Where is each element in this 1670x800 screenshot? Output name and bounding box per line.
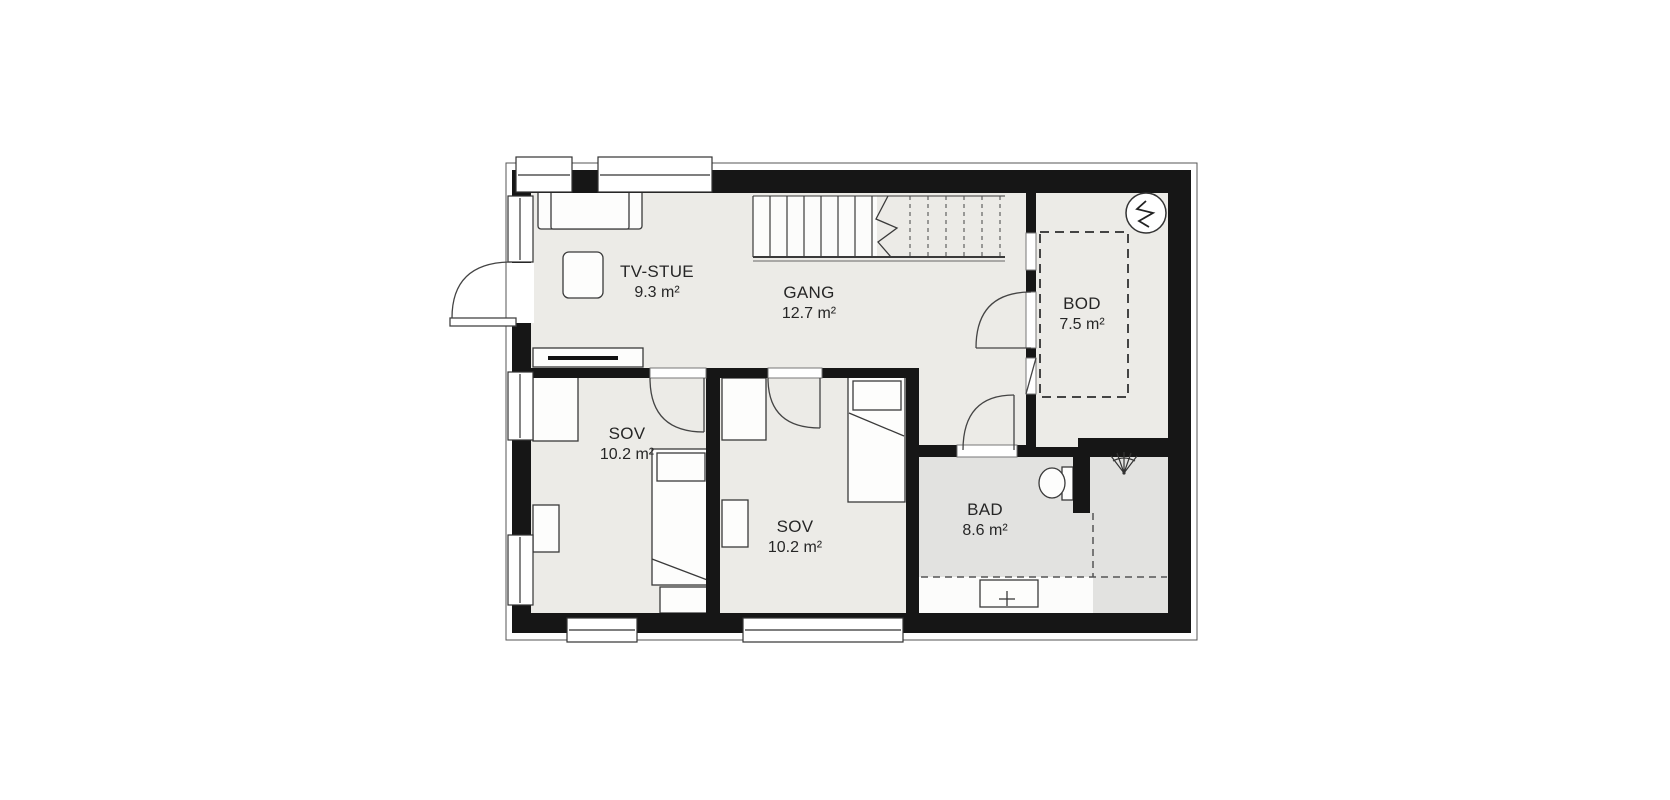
wardrobe-sov-left (533, 377, 578, 441)
wall-sov-bad (906, 368, 919, 613)
window-top-b (598, 157, 712, 192)
nightstand-sov-mid (722, 500, 748, 547)
wall-bod-left-4 (1026, 394, 1036, 457)
window-left-a (508, 196, 533, 262)
nightstand-sov-left (533, 505, 559, 552)
wall-gang-bad-a (919, 445, 957, 457)
toilet (1039, 467, 1073, 500)
opening-bod-door (1026, 292, 1036, 348)
wall-bedrooms-c (822, 368, 918, 378)
bed-sov-mid (848, 377, 905, 502)
opening-sov-mid (768, 368, 822, 378)
wall-bod-left-3 (1026, 348, 1036, 358)
media-bench (533, 348, 643, 367)
wardrobe-sov-mid (722, 378, 766, 440)
bed-sov-left (652, 449, 710, 613)
window-bottom-b (743, 618, 903, 642)
wall-bedrooms-a (531, 368, 650, 378)
wall-bod-left-2 (1026, 270, 1036, 292)
wall-bod-left-1 (1026, 193, 1036, 233)
window-bottom-a (567, 618, 637, 642)
wall-right (1168, 170, 1191, 633)
vanity-sink (980, 580, 1038, 607)
window-top-a (516, 157, 572, 192)
opening-entrance (509, 263, 534, 323)
window-left-c (508, 535, 533, 605)
wall-bod-bottom-thin (1036, 447, 1080, 457)
opening-bod-top (1026, 233, 1036, 270)
window-left-b (508, 372, 533, 440)
water-heater-icon (1126, 193, 1166, 233)
opening-sov-left (650, 368, 706, 378)
opening-bad (957, 445, 1017, 457)
floorplan-page: TV-STUE 9.3 m² GANG 12.7 m² BOD 7.5 m² S… (0, 0, 1670, 800)
side-table (563, 252, 603, 298)
wall-toilet-stub (1073, 457, 1090, 513)
floorplan-drawing (440, 145, 1210, 650)
wall-sov-divider (706, 368, 720, 613)
stair-floor (753, 196, 877, 258)
